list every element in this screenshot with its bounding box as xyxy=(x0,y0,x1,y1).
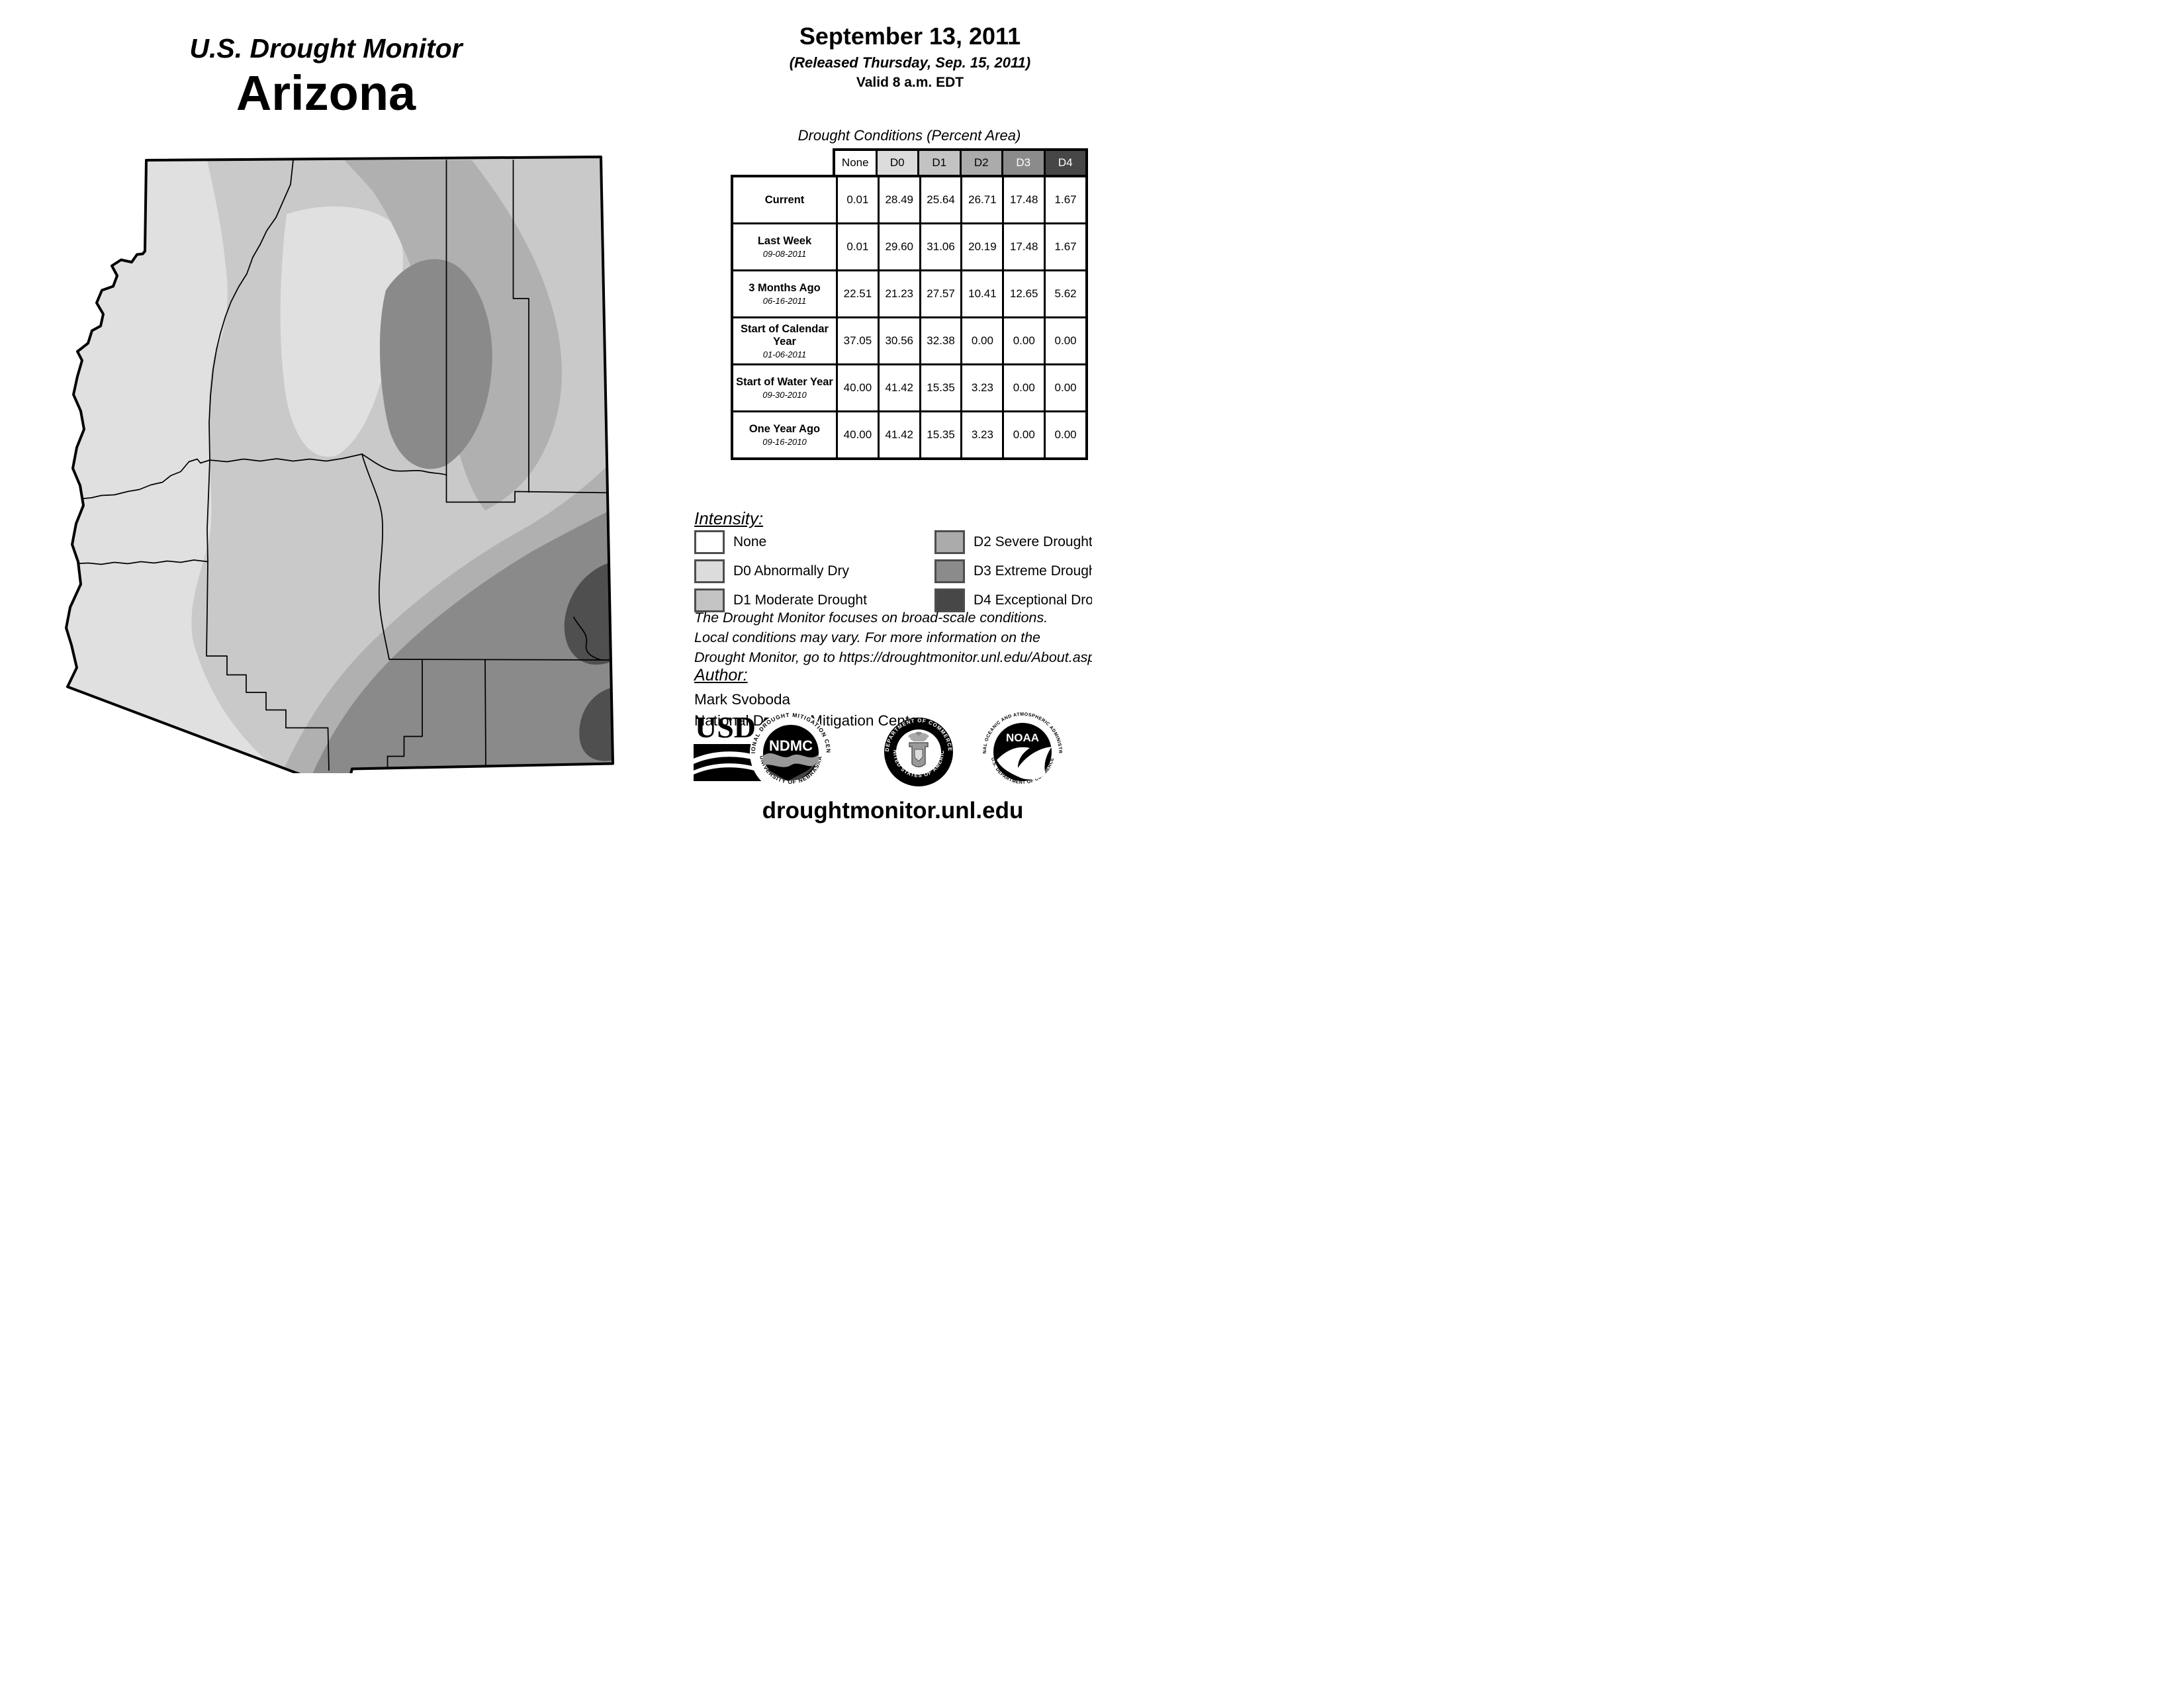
author-name: Mark Svoboda xyxy=(694,691,790,708)
table-cell: 31.06 xyxy=(921,224,961,269)
legend-swatch-d0 xyxy=(694,559,725,583)
table-cell: 25.64 xyxy=(921,177,961,222)
table-cell: 0.00 xyxy=(1004,412,1044,457)
table-cell: 30.56 xyxy=(880,318,919,363)
page-title: U.S. Drought Monitor xyxy=(0,33,652,64)
table-cell: 26.71 xyxy=(962,177,1002,222)
table-cell: 3.23 xyxy=(962,365,1002,410)
author-heading: Author: xyxy=(694,666,748,685)
report-date: September 13, 2011 xyxy=(718,23,1092,50)
table-row-label: Current xyxy=(733,177,836,222)
col-header-d1: D1 xyxy=(919,151,960,175)
col-header-d0: D0 xyxy=(878,151,918,175)
drought-table-body: Current 0.01 28.49 25.64 26.71 17.48 1.6… xyxy=(731,175,1088,460)
legend-swatch-d3 xyxy=(934,559,965,583)
table-cell: 37.05 xyxy=(838,318,878,363)
table-cell: 32.38 xyxy=(921,318,961,363)
table-cell: 41.42 xyxy=(880,365,919,410)
table-row-label: Start of Calendar Year 01-06-2011 xyxy=(733,318,836,363)
disclaimer-text: The Drought Monitor focuses on broad-sca… xyxy=(694,608,1092,667)
svg-text:NDMC: NDMC xyxy=(769,737,813,754)
table-cell: 3.23 xyxy=(962,412,1002,457)
table-cell: 12.65 xyxy=(1004,271,1044,316)
table-cell: 28.49 xyxy=(880,177,919,222)
drought-monitor-report: U.S. Drought Monitor Arizona xyxy=(0,0,1092,844)
legend-item-d0: D0 Abnormally Dry xyxy=(694,559,849,584)
table-cell: 21.23 xyxy=(880,271,919,316)
table-cell: 15.35 xyxy=(921,412,961,457)
table-title: Drought Conditions (Percent Area) xyxy=(731,127,1088,144)
table-cell: 20.19 xyxy=(962,224,1002,269)
table-row-label: 3 Months Ago 06-16-2011 xyxy=(733,271,836,316)
agency-logos: USDA NATIONAL DROUGHT MITIGATION CENTER … xyxy=(688,710,1092,796)
table-cell: 40.00 xyxy=(838,412,878,457)
table-row-label: Last Week 09-08-2011 xyxy=(733,224,836,269)
state-name-title: Arizona xyxy=(0,65,652,121)
drought-table-header: None D0 D1 D2 D3 D4 xyxy=(833,148,1088,177)
table-cell: 40.00 xyxy=(838,365,878,410)
table-cell: 0.01 xyxy=(838,224,878,269)
legend-item-d2: D2 Severe Drought xyxy=(934,530,1092,555)
legend-item-none: None xyxy=(694,530,766,555)
table-cell: 0.01 xyxy=(838,177,878,222)
release-date: (Released Thursday, Sep. 15, 2011) xyxy=(718,54,1092,71)
table-cell: 17.48 xyxy=(1004,224,1044,269)
table-cell: 0.00 xyxy=(1046,318,1085,363)
table-cell: 5.62 xyxy=(1046,271,1085,316)
col-header-d2: D2 xyxy=(962,151,1002,175)
table-cell: 41.42 xyxy=(880,412,919,457)
table-row-label: One Year Ago 09-16-2010 xyxy=(733,412,836,457)
table-cell: 22.51 xyxy=(838,271,878,316)
col-header-none: None xyxy=(835,151,876,175)
table-cell: 29.60 xyxy=(880,224,919,269)
table-cell: 15.35 xyxy=(921,365,961,410)
svg-text:NOAA: NOAA xyxy=(1006,731,1039,744)
table-cell: 1.67 xyxy=(1046,177,1085,222)
table-cell: 0.00 xyxy=(1046,412,1085,457)
legend-swatch-d2 xyxy=(934,530,965,554)
table-cell: 27.57 xyxy=(921,271,961,316)
col-header-d4: D4 xyxy=(1046,151,1086,175)
table-cell: 0.00 xyxy=(1046,365,1085,410)
col-header-d3: D3 xyxy=(1003,151,1044,175)
table-cell: 10.41 xyxy=(962,271,1002,316)
table-row-label: Start of Water Year 09-30-2010 xyxy=(733,365,836,410)
table-cell: 0.00 xyxy=(962,318,1002,363)
table-cell: 17.48 xyxy=(1004,177,1044,222)
table-cell: 0.00 xyxy=(1004,318,1044,363)
legend-swatch-none xyxy=(694,530,725,554)
valid-time: Valid 8 a.m. EDT xyxy=(718,75,1092,91)
legend-title: Intensity: xyxy=(694,508,763,529)
table-cell: 1.67 xyxy=(1046,224,1085,269)
legend-item-d3: D3 Extreme Drought xyxy=(934,559,1092,584)
table-cell: 0.00 xyxy=(1004,365,1044,410)
arizona-drought-map xyxy=(58,150,627,773)
footer-url: droughtmonitor.unl.edu xyxy=(694,798,1091,824)
